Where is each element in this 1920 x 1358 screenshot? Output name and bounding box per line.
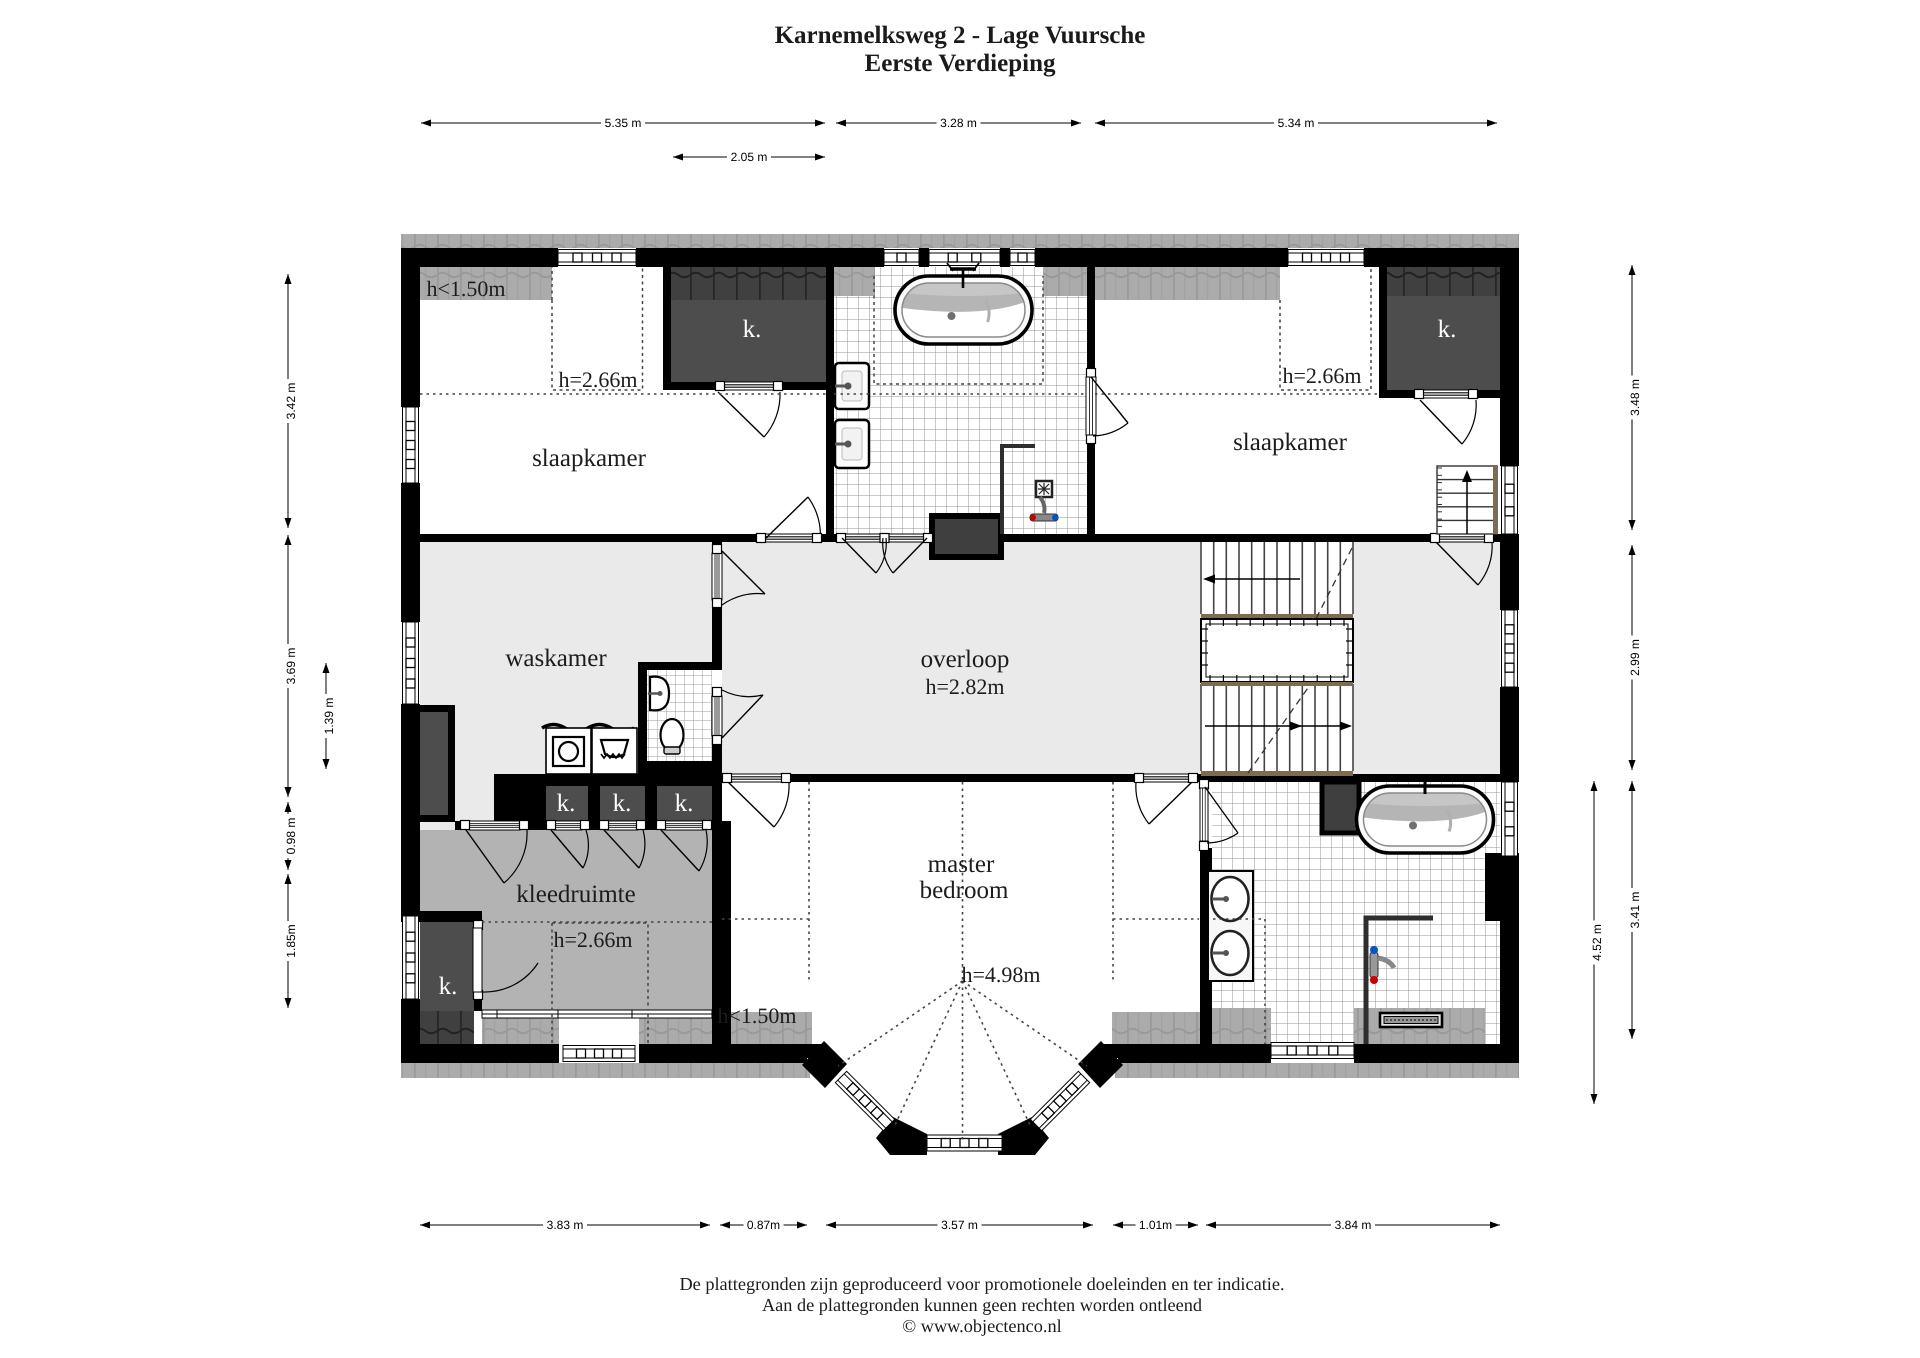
svg-text:1.39 m: 1.39 m — [322, 698, 336, 735]
svg-text:© www.objectenco.nl: © www.objectenco.nl — [902, 1316, 1061, 1336]
svg-text:h<1.50m: h<1.50m — [426, 276, 505, 301]
svg-text:3.41 m: 3.41 m — [1628, 892, 1642, 929]
svg-text:4.52 m: 4.52 m — [1590, 924, 1604, 961]
svg-text:3.28 m: 3.28 m — [940, 116, 977, 130]
svg-text:k.: k. — [557, 790, 576, 817]
svg-text:1.01m: 1.01m — [1139, 1218, 1172, 1232]
svg-text:h<1.50m: h<1.50m — [717, 1003, 796, 1028]
svg-text:bedroom: bedroom — [920, 877, 1009, 904]
svg-text:Eerste Verdieping: Eerste Verdieping — [865, 50, 1056, 77]
svg-text:0.98 m: 0.98 m — [284, 818, 298, 855]
svg-text:slaapkamer: slaapkamer — [1233, 429, 1348, 456]
svg-text:h=2.66m: h=2.66m — [558, 367, 637, 392]
svg-text:Karnemelksweg 2 - Lage Vuursch: Karnemelksweg 2 - Lage Vuursche — [775, 22, 1146, 49]
svg-text:De plattegronden zijn geproduc: De plattegronden zijn geproduceerd voor … — [679, 1274, 1284, 1294]
svg-text:5.35 m: 5.35 m — [605, 116, 642, 130]
svg-text:5.34 m: 5.34 m — [1278, 116, 1315, 130]
svg-text:3.84 m: 3.84 m — [1335, 1218, 1372, 1232]
svg-text:2.99 m: 2.99 m — [1628, 639, 1642, 676]
svg-text:k.: k. — [439, 973, 458, 1000]
svg-text:waskamer: waskamer — [505, 645, 607, 672]
svg-text:3.69 m: 3.69 m — [284, 648, 298, 685]
svg-text:k.: k. — [1438, 316, 1457, 343]
svg-text:k.: k. — [613, 790, 632, 817]
svg-text:master: master — [928, 851, 995, 878]
svg-text:3.48 m: 3.48 m — [1628, 379, 1642, 416]
svg-text:kleedruimte: kleedruimte — [516, 881, 635, 908]
svg-text:slaapkamer: slaapkamer — [532, 445, 647, 472]
svg-text:3.42 m: 3.42 m — [284, 383, 298, 420]
svg-text:k.: k. — [675, 790, 694, 817]
svg-text:1.85m: 1.85m — [284, 924, 298, 957]
svg-text:0.87m: 0.87m — [747, 1218, 780, 1232]
svg-text:h=2.66m: h=2.66m — [553, 927, 632, 952]
svg-text:overloop: overloop — [921, 646, 1010, 673]
svg-text:h=2.82m: h=2.82m — [925, 674, 1004, 699]
svg-text:h=4.98m: h=4.98m — [961, 962, 1040, 987]
svg-text:2.05 m: 2.05 m — [731, 150, 768, 164]
svg-text:k.: k. — [743, 316, 762, 343]
svg-text:3.57 m: 3.57 m — [941, 1218, 978, 1232]
svg-text:h=2.66m: h=2.66m — [1282, 363, 1361, 388]
svg-text:Aan de plattegronden kunnen ge: Aan de plattegronden kunnen geen rechten… — [762, 1295, 1202, 1315]
svg-text:3.83 m: 3.83 m — [547, 1218, 584, 1232]
